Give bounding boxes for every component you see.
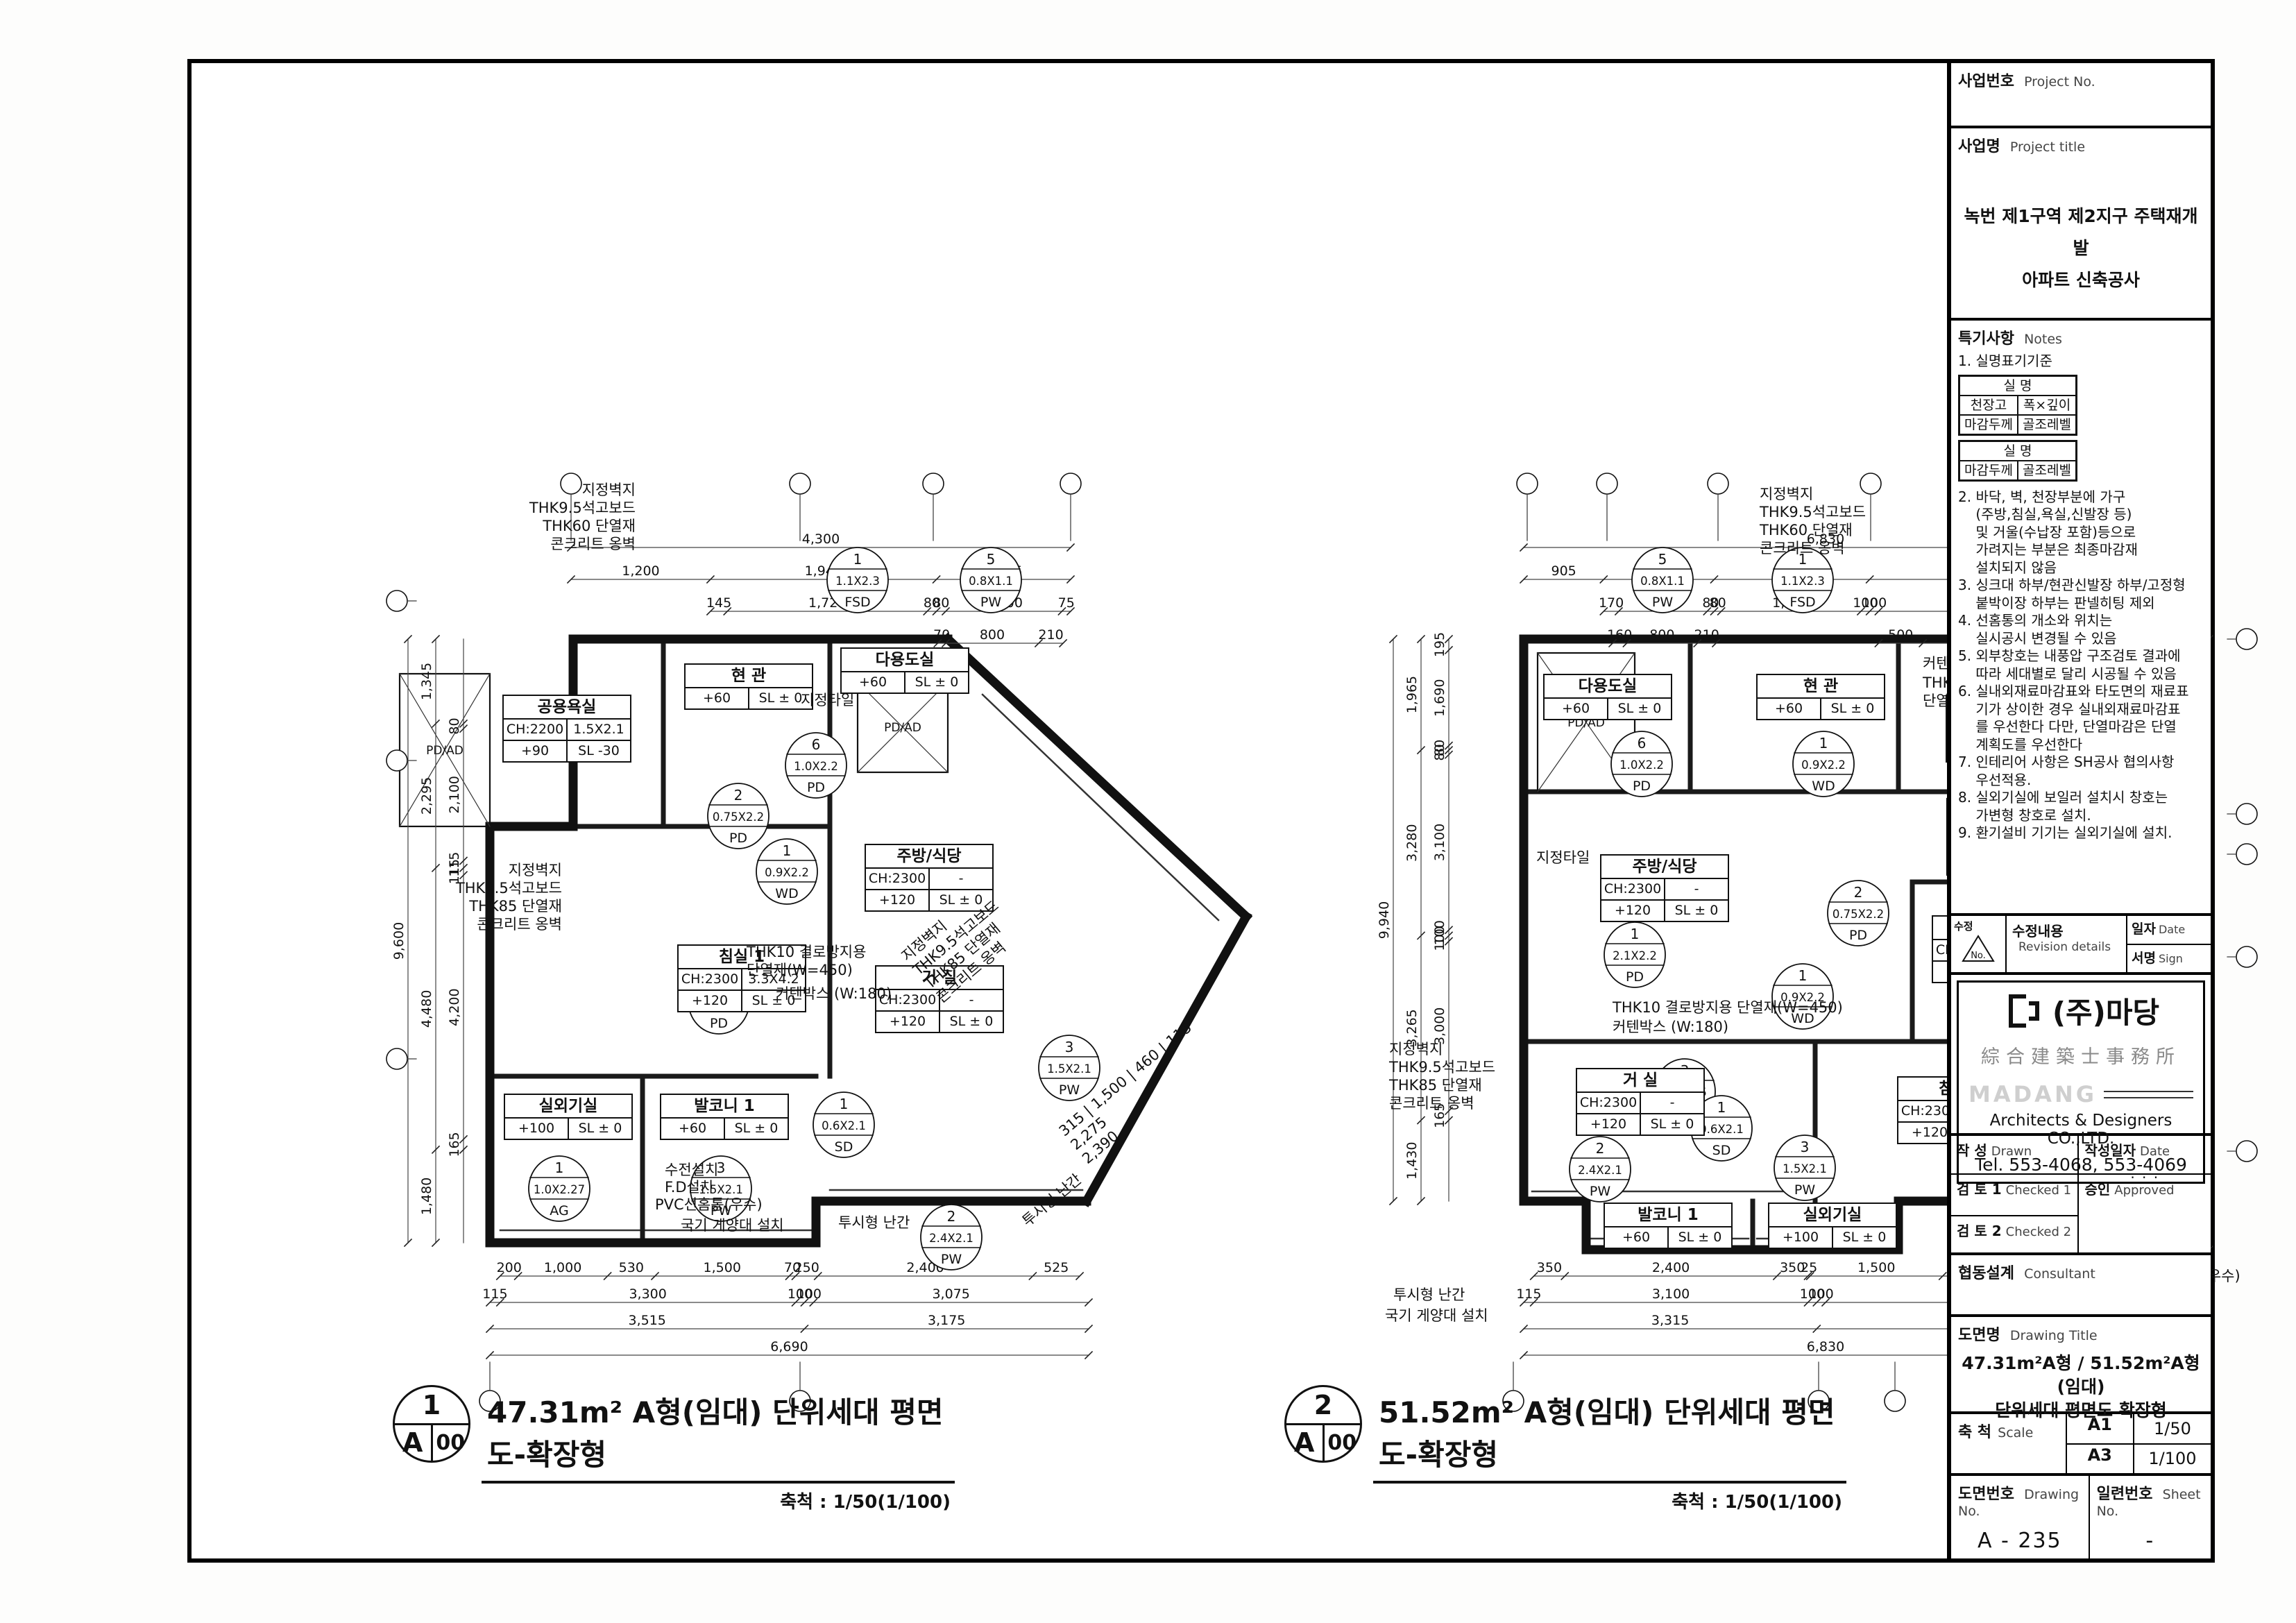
drawn-cell: 작 성Drawn [1951, 1136, 2077, 1175]
sheet-no-value: - [2097, 1529, 2204, 1553]
note-item: 가려지는 부분은 최종마감재 [1958, 541, 2204, 559]
door-tag: 10.6X2.1SD [813, 1092, 874, 1157]
svg-text:2,295: 2,295 [419, 777, 434, 815]
annotation-line: 투시형 난간 [838, 1214, 910, 1232]
room-info-cell: +120 [876, 1012, 940, 1032]
svg-text:PD: PD [729, 831, 747, 846]
room-info-cell: - [930, 869, 992, 889]
checked1-label-en: Checked 1 [2006, 1183, 2071, 1198]
grid-bubble [1060, 473, 1081, 494]
svg-text:SD: SD [1712, 1143, 1731, 1158]
svg-text:800: 800 [980, 627, 1005, 643]
svg-text:1.0X2.2: 1.0X2.2 [1619, 758, 1664, 772]
room-info-cell: +90 [504, 741, 568, 761]
room-info-cell: +60 [842, 672, 905, 692]
room-name: 공용욕실 [504, 696, 630, 720]
svg-text:PW: PW [980, 595, 1001, 610]
svg-text:2.4X2.1: 2.4X2.1 [1578, 1164, 1622, 1177]
door-tag: 10.9X2.2WD [756, 839, 817, 904]
svg-text:530: 530 [619, 1260, 644, 1275]
grid-bubble [790, 473, 810, 494]
annotation-line: THK60 단열재 [1760, 521, 1866, 539]
svg-text:0.6X2.1: 0.6X2.1 [822, 1119, 866, 1132]
room-info-row: +100SL ± 0 [1769, 1227, 1896, 1248]
svg-text:SD: SD [835, 1139, 853, 1155]
sheet-no-label-ko: 일련번호 [2097, 1486, 2153, 1503]
revision-triangle: 수정 No. [1951, 916, 2007, 972]
project-no-label-en: Project No. [2024, 74, 2095, 90]
note-table-cell: 실 명 [1959, 376, 2076, 396]
svg-text:3,300: 3,300 [629, 1286, 666, 1302]
room-info-cell: SL ± 0 [1669, 1227, 1731, 1248]
svg-text:1: 1 [1717, 1099, 1726, 1116]
room-info-cell: CH:2300 [679, 969, 742, 989]
svg-text:1: 1 [555, 1159, 564, 1176]
room-info-cell: SL ± 0 [1821, 699, 1884, 719]
consultant-label-ko: 협동설계 [1958, 1265, 2014, 1282]
grid-bubble [2236, 629, 2257, 649]
room-info-row: +60SL ± 0 [661, 1119, 788, 1139]
svg-text:75: 75 [1058, 595, 1075, 611]
note-item: 1. 실명표기기준 [1958, 352, 2204, 371]
note-item: 가변형 창호로 설치. [1958, 807, 2204, 825]
room-info-row: +60SL ± 0 [1545, 699, 1671, 719]
door-tag: 10.9X2.2WD [1793, 731, 1854, 797]
room-name: 현 관 [686, 665, 812, 688]
svg-text:1,430: 1,430 [1404, 1142, 1420, 1180]
note-item: 실시공시 변경될 수 있음 [1958, 630, 2204, 648]
grid-bubble [386, 1048, 407, 1069]
company-divider [2104, 1091, 2193, 1098]
note-table-cell: 골조레벨 [2018, 461, 2076, 480]
plan-scale-text: 축척 : 1/50(1/100) [482, 1484, 955, 1513]
door-tag: 50.8X1.1PW [960, 547, 1021, 613]
svg-text:9,940: 9,940 [1377, 901, 1392, 939]
annotation: 투시형 난간 [1393, 1286, 1465, 1304]
room-info-row: +100SL ± 0 [505, 1119, 631, 1139]
note-table-cell: 폭×깊이 [2018, 396, 2076, 415]
annotation-line: PVC선홈통(우수) [655, 1196, 763, 1214]
room-name: 주방/식당 [866, 845, 992, 869]
room-info-cell: - [1665, 879, 1728, 899]
annotation: 투시형 난간 [838, 1214, 910, 1232]
svg-text:100: 100 [797, 1286, 822, 1302]
room-table: 현 관+60SL ± 0 [1756, 674, 1885, 720]
room-name: 다용도실 [1545, 675, 1671, 699]
door-tag: 11.1X2.3FSD [1772, 547, 1833, 613]
note-item: 3. 싱크대 하부/현관신발장 하부/고정형 [1958, 577, 2204, 595]
svg-text:No.: No. [1971, 951, 1986, 961]
svg-text:1,000: 1,000 [544, 1260, 581, 1275]
grid-bubble [1885, 1391, 1905, 1411]
room-table: 다용도실+60SL ± 0 [1543, 674, 1672, 720]
annotation-line: 단열재(W=450) [747, 961, 866, 979]
scale-label-ko: 축 척 [1958, 1424, 1991, 1441]
svg-text:3,000: 3,000 [1432, 1008, 1447, 1045]
consultant-section: 협동설계 Consultant [1951, 1255, 2211, 1317]
drawing-no-value: A - 235 [1958, 1529, 2082, 1553]
approved-cell: 승인Approved [2077, 1175, 2211, 1255]
svg-text:1,480: 1,480 [419, 1178, 434, 1215]
svg-text:PW: PW [941, 1252, 962, 1267]
svg-text:210: 210 [1694, 627, 1719, 643]
room-info-cell: SL ± 0 [725, 1119, 788, 1139]
svg-text:3,280: 3,280 [1404, 824, 1420, 862]
annotation-line: 국기 게양대 설치 [681, 1216, 784, 1234]
room-name: 발코니 1 [661, 1095, 788, 1119]
plan-ref-sub: 00 [1325, 1425, 1361, 1461]
door-tag: 61.0X2.2PD [1611, 731, 1672, 797]
svg-text:2: 2 [947, 1208, 956, 1225]
signoff-section: 작 성Drawn 작성일자Date. . . 검 토 1Checked 1 승인… [1951, 1136, 2211, 1255]
annotation-line: THK9.5석고보드 [1760, 503, 1866, 521]
svg-text:0.9X2.2: 0.9X2.2 [765, 866, 809, 879]
door-tag: 12.1X2.2PD [1604, 922, 1665, 987]
svg-text:1,500: 1,500 [704, 1260, 741, 1275]
svg-text:160: 160 [1607, 627, 1632, 643]
project-title-label-ko: 사업명 [1958, 138, 2000, 155]
svg-text:170: 170 [1599, 595, 1624, 611]
svg-text:2,100: 2,100 [447, 776, 462, 813]
drawing-title-section: 도면명 Drawing Title 47.31m²A형 / 51.52m²A형 … [1951, 1317, 2211, 1414]
svg-text:1: 1 [853, 551, 862, 568]
door-tag: 20.75X2.2PD [1828, 881, 1889, 946]
room-name: 실외기실 [505, 1095, 631, 1119]
note-item: 기가 상이한 경우 실내외재료마감표 [1958, 701, 2204, 719]
annotation-line: 지정타일 [801, 691, 854, 709]
annotation-line: 콘크리트 옹벽 [414, 915, 562, 933]
checked2-label-en: Checked 2 [2006, 1225, 2071, 1239]
annotation-line: 지정타일 [1536, 849, 1590, 867]
annotation-line: 콘크리트 옹벽 [476, 535, 636, 553]
grid-bubble [2236, 1141, 2257, 1162]
annotation-line: F.D설치 [665, 1178, 713, 1196]
project-no-section: 사업번호 Project No. [1951, 63, 2211, 128]
plan-left: PD/ADPD/AD4,3001,2001,9451,1551451,72080… [386, 466, 1302, 1451]
annotation: 지정타일 [1536, 849, 1590, 867]
svg-text:500: 500 [1888, 627, 1913, 643]
note-item: 4. 선홈통의 개소와 위치는 [1958, 612, 2204, 630]
room-info-cell: SL ± 0 [940, 1012, 1003, 1032]
svg-text:1,500: 1,500 [1857, 1260, 1895, 1275]
svg-text:1.1X2.3: 1.1X2.3 [835, 575, 880, 588]
svg-text:70: 70 [933, 627, 950, 643]
door-tag: 10.9X2.2WD [1772, 964, 1833, 1029]
svg-text:3,515: 3,515 [629, 1313, 666, 1328]
svg-text:0.75X2.2: 0.75X2.2 [713, 810, 764, 824]
note-item: 6. 실내외재료마감표와 타도면의 재료표 [1958, 683, 2204, 701]
note-table-row: 실 명 [1959, 441, 2076, 461]
door-tag: 20.75X2.2PD [708, 783, 769, 849]
svg-text:FSD: FSD [1789, 595, 1815, 610]
annotation-line: 지정벽지 [476, 481, 636, 499]
company-en-name: MADANG [1968, 1081, 2097, 1107]
svg-text:PW: PW [1590, 1184, 1610, 1199]
company-logo-icon [2002, 991, 2043, 1031]
room-info-cell: +60 [1545, 699, 1608, 719]
room-info-cell: +120 [679, 991, 742, 1011]
note-item: 8. 실외기실에 보일러 설치시 창호는 [1958, 789, 2204, 807]
svg-text:1: 1 [840, 1096, 849, 1112]
note-item: 붙박이장 하부는 판넬히팅 제외 [1958, 595, 2204, 613]
drawn-date-cell: 작성일자Date. . . [2077, 1136, 2211, 1175]
scale-a1-value: 1/50 [2134, 1419, 2211, 1438]
drawing-title-label-ko: 도면명 [1958, 1327, 2000, 1344]
room-info-cell: SL ± 0 [1665, 901, 1728, 921]
room-table: 발코니 1+60SL ± 0 [660, 1094, 789, 1140]
annotation-line: 콘크리트 옹벽 [1760, 539, 1866, 557]
note-item: 및 거울(수납장 포함)등으로 [1958, 524, 2204, 542]
svg-text:2: 2 [1596, 1140, 1605, 1157]
svg-text:2,400: 2,400 [1652, 1260, 1690, 1275]
company-section: (주)마당 綜合建築士事務所 MADANG Architects & Desig… [1951, 975, 2211, 1136]
room-info-cell: SL ± 0 [569, 1119, 631, 1139]
note-table: 실 명마감두께골조레벨 [1958, 440, 2077, 482]
svg-text:WD: WD [1812, 779, 1835, 794]
scale-section: 축 척Scale A11/50 A31/100 [1951, 1414, 2211, 1476]
note-item: 5. 외부창호는 내풍압 구조검토 결과에 [1958, 647, 2204, 665]
annotation-line: THK60 단열재 [476, 517, 636, 535]
room-name: 거 실 [1577, 1069, 1703, 1093]
grid-bubble [923, 473, 944, 494]
room-info-cell: +120 [866, 890, 930, 910]
annotation-line: 커텐박스 (W:180) [1613, 1018, 1728, 1036]
drawn-label-en: Drawn [1991, 1144, 2032, 1159]
svg-text:0.8X1.1: 0.8X1.1 [1640, 575, 1685, 588]
annotation: 국기 게양대 설치 [1385, 1307, 1488, 1325]
note-table: 실 명천장고폭×깊이마감두께골조레벨 [1958, 375, 2077, 436]
grid-bubble [1708, 473, 1728, 494]
note-item: 우선적용. [1958, 772, 2204, 790]
svg-text:1,345: 1,345 [419, 663, 434, 700]
room-info-row: +60SL ± 0 [842, 672, 968, 692]
plan-ref-sheet: A [1286, 1425, 1325, 1461]
svg-text:80: 80 [933, 595, 949, 611]
consultant-label-en: Consultant [2024, 1266, 2095, 1282]
annotation-line: 커텐박스 (W:180) [776, 985, 892, 1003]
scale-label-en: Scale [1998, 1425, 2033, 1441]
room-info-cell: +120 [1577, 1114, 1641, 1135]
svg-text:1.5X2.1: 1.5X2.1 [1783, 1162, 1827, 1175]
revision-section: 수정 No. 수정내용 Revision details 일자Date 서명Si… [1951, 916, 2211, 975]
plan-title-1: 1 A00 47.31m² A형(임대) 단위세대 평면도-확장형 축척 : 1… [393, 1385, 955, 1513]
approved-label-ko: 승인 [2084, 1181, 2110, 1198]
svg-text:1: 1 [783, 842, 792, 859]
approved-label-en: Approved [2114, 1183, 2174, 1198]
drawn-label-ko: 작 성 [1957, 1142, 1987, 1159]
svg-text:PD: PD [710, 1016, 728, 1031]
svg-text:0.75X2.2: 0.75X2.2 [1832, 908, 1884, 921]
room-info-cell: +60 [1605, 1227, 1669, 1248]
svg-text:4,300: 4,300 [802, 532, 840, 547]
title-block: 사업번호 Project No. 사업명 Project title 녹번 제1… [1947, 63, 2211, 1558]
annotation: 지정벽지THK9.5석고보드THK60 단열재콘크리트 옹벽 [476, 481, 636, 553]
scale-a3-value: 1/100 [2134, 1449, 2211, 1468]
drawing-no-label-ko: 도면번호 [1958, 1486, 2014, 1503]
annotation: F.D설치 [665, 1178, 713, 1196]
revision-sign-ko: 서명 [2132, 951, 2156, 966]
annotation-line: 국기 게양대 설치 [1385, 1307, 1488, 1325]
svg-text:5: 5 [1658, 551, 1667, 568]
svg-text:1,690: 1,690 [1432, 679, 1447, 717]
checked1-label-ko: 검 토 1 [1957, 1181, 2002, 1198]
room-info-row: +60SL ± 0 [1758, 699, 1884, 719]
note-item: 7. 인테리어 사항은 SH공사 협의사항 [1958, 754, 2204, 772]
annotation: THK10 결로방지용단열재(W=450) [747, 943, 866, 979]
project-name-line2: 아파트 신축공사 [1958, 264, 2204, 296]
plan-ref-sub: 00 [433, 1425, 469, 1461]
note-table-cell: 실 명 [1959, 441, 2076, 461]
annotation-line: THK10 결로방지용 [747, 943, 866, 961]
room-name: 실외기실 [1769, 1204, 1896, 1227]
plan-ref-number: 2 [1286, 1387, 1360, 1425]
checked2-label-ko: 검 토 2 [1957, 1223, 2002, 1239]
annotation: 지정타일 [801, 691, 854, 709]
room-info-row: +120SL ± 0 [876, 1010, 1003, 1032]
scale-a1-label: A1 [2067, 1414, 2134, 1443]
revision-tri-label: 수정 [1954, 919, 2002, 933]
svg-text:3,100: 3,100 [1652, 1286, 1690, 1302]
annotation: 커텐박스 (W:180) [776, 985, 892, 1003]
svg-text:5: 5 [987, 551, 996, 568]
grid-bubble [2236, 844, 2257, 865]
svg-text:6,830: 6,830 [1807, 1339, 1844, 1354]
annotation: 지정벽지THK9.5석고보드THK85 단열재콘크리트 옹벽 [414, 861, 562, 933]
room-info-cell: SL ± 0 [905, 672, 968, 692]
project-title-label-en: Project title [2010, 139, 2085, 155]
svg-text:350: 350 [1537, 1260, 1562, 1275]
svg-text:210: 210 [1038, 627, 1063, 643]
annotation-line: THK9.5석고보드 [476, 499, 636, 517]
scale-a3-label: A3 [2067, 1445, 2134, 1473]
svg-text:9,600: 9,600 [391, 922, 407, 960]
annotation: 지정벽지THK9.5석고보드THK85 단열재콘크리트 옹벽 [1389, 1040, 1495, 1112]
notes-label-en: Notes [2024, 332, 2062, 347]
room-info-row: CH:2300- [1577, 1093, 1703, 1113]
svg-text:6: 6 [1638, 735, 1647, 751]
door-tag: 31.5X2.1PW [1774, 1135, 1835, 1200]
plan-ref-sheet: A [395, 1425, 433, 1461]
svg-text:1.5X2.1: 1.5X2.1 [1047, 1062, 1091, 1076]
svg-text:PW: PW [1059, 1082, 1080, 1098]
svg-text:0.9X2.2: 0.9X2.2 [1801, 758, 1846, 772]
door-tag: 50.8X1.1PW [1632, 547, 1693, 613]
room-info-row: +60SL ± 0 [1605, 1227, 1731, 1248]
notes-content: 1. 실명표기기준실 명천장고폭×깊이마감두께골조레벨실 명마감두께골조레벨2.… [1958, 352, 2204, 842]
room-table: 공용욕실CH:22001.5X2.1+90SL -30 [502, 695, 631, 763]
room-info-cell: +60 [686, 688, 749, 708]
note-table-cell: 마감두께 [1959, 415, 2018, 434]
svg-text:2.4X2.1: 2.4X2.1 [929, 1232, 973, 1245]
note-item: 9. 환기설비 기기는 실외기실에 설치. [1958, 824, 2204, 842]
note-item: 2. 바닥, 벽, 천장부분에 가구 [1958, 488, 2204, 507]
svg-text:PW: PW [1794, 1182, 1815, 1198]
room-info-cell: +100 [505, 1119, 569, 1139]
svg-text:3,100: 3,100 [1432, 824, 1447, 861]
plan-ref-bubble-1: 1 A00 [393, 1385, 470, 1463]
company-cjk-name: 綜合建築士事務所 [1963, 1042, 2199, 1069]
svg-text:1,965: 1,965 [1404, 676, 1420, 713]
door-tag: 11.0X2.27AG [529, 1156, 590, 1221]
door-tag: 22.4X2.1PW [921, 1205, 982, 1270]
annotation-line: THK9.5석고보드 [414, 879, 562, 897]
drawn-date-label-ko: 작성일자 [2084, 1142, 2136, 1159]
note-item: 계획도를 우선한다 [1958, 736, 2204, 754]
room-info-cell: CH:2300 [1577, 1093, 1641, 1113]
svg-text:2: 2 [734, 787, 743, 804]
svg-text:3: 3 [1801, 1139, 1810, 1155]
door-tag: 61.0X2.2PD [785, 733, 847, 798]
room-info-row: CH:2300- [1601, 879, 1728, 899]
plan-title-text: 47.31m² A형(임대) 단위세대 평면도-확장형 [482, 1389, 955, 1484]
note-table-cell: 천장고 [1959, 396, 2018, 415]
svg-text:525: 525 [1044, 1260, 1069, 1275]
room-table: 현 관+60SL ± 0 [684, 663, 813, 710]
svg-text:1: 1 [1798, 967, 1808, 984]
svg-text:100: 100 [1432, 926, 1447, 951]
annotation-line: THK9.5석고보드 [1389, 1058, 1495, 1076]
grid-bubble [1597, 473, 1617, 494]
annotation: 수전설치 [665, 1161, 718, 1179]
room-name: 현 관 [1758, 675, 1884, 699]
svg-text:2: 2 [1854, 884, 1863, 901]
checked2-cell: 검 토 2Checked 2 [1951, 1216, 2077, 1255]
project-title-section: 사업명 Project title 녹번 제1구역 제2지구 주택재개발 아파트… [1951, 128, 2211, 321]
note-table-cell: 마감두께 [1959, 461, 2018, 480]
sheet-frame: PD/ADPD/AD4,3001,2001,9451,1551451,72080… [187, 59, 2215, 1563]
plan-ref-number: 1 [395, 1387, 468, 1425]
room-table: 주방/식당CH:2300-+120SL ± 0 [1600, 854, 1729, 922]
svg-text:1: 1 [1819, 735, 1828, 751]
room-info-cell: +100 [1769, 1227, 1833, 1248]
annotation: PVC선홈통(우수) [655, 1196, 763, 1214]
svg-text:1: 1 [1631, 926, 1640, 942]
annotation: 커텐박스 (W:180) [1613, 1018, 1728, 1036]
svg-text:4,200: 4,200 [447, 988, 462, 1026]
svg-text:1.1X2.3: 1.1X2.3 [1780, 575, 1825, 588]
svg-text:1.0X2.2: 1.0X2.2 [794, 760, 838, 773]
grid-bubble [2236, 804, 2257, 824]
note-item: 를 우선한다 다만, 단열마감은 단열 [1958, 718, 2204, 736]
room-table: 발코니 1+60SL ± 0 [1604, 1203, 1733, 1249]
drawing-title-label-en: Drawing Title [2010, 1328, 2098, 1343]
revision-date-en: Date [2159, 923, 2185, 936]
door-tag: 31.5X2.1PW [1039, 1035, 1100, 1101]
svg-text:3,075: 3,075 [932, 1286, 969, 1302]
svg-text:6,690: 6,690 [770, 1339, 808, 1354]
room-info-cell: SL ± 0 [1608, 699, 1671, 719]
annotation-line: 투시형 난간 [1393, 1286, 1465, 1304]
room-info-cell: CH:2300 [866, 869, 930, 889]
room-table: 거 실CH:2300-+120SL ± 0 [1576, 1068, 1705, 1136]
revision-details-en: Revision details [2018, 940, 2111, 954]
project-name-line1: 녹번 제1구역 제2지구 주택재개발 [1958, 201, 2204, 264]
note-item: (주방,침실,욕실,신발장 등) [1958, 506, 2204, 524]
svg-text:WD: WD [775, 886, 798, 901]
annotation-line: THK85 단열재 [1389, 1076, 1495, 1094]
door-tag: 22.4X2.1PW [1570, 1137, 1631, 1202]
svg-text:100: 100 [1862, 595, 1887, 611]
svg-text:200: 200 [497, 1260, 522, 1275]
number-section: 도면번호 Drawing No. A - 235 일련번호 Sheet No. … [1951, 1476, 2211, 1558]
svg-text:100: 100 [1808, 1286, 1833, 1302]
svg-text:PD/AD: PD/AD [884, 721, 921, 735]
svg-text:1,200: 1,200 [622, 563, 659, 579]
room-info-cell: +120 [1601, 901, 1665, 921]
note-table-row: 실 명 [1959, 376, 2076, 396]
svg-text:0.6X2.1: 0.6X2.1 [1699, 1123, 1744, 1136]
grid-bubble [2236, 946, 2257, 967]
